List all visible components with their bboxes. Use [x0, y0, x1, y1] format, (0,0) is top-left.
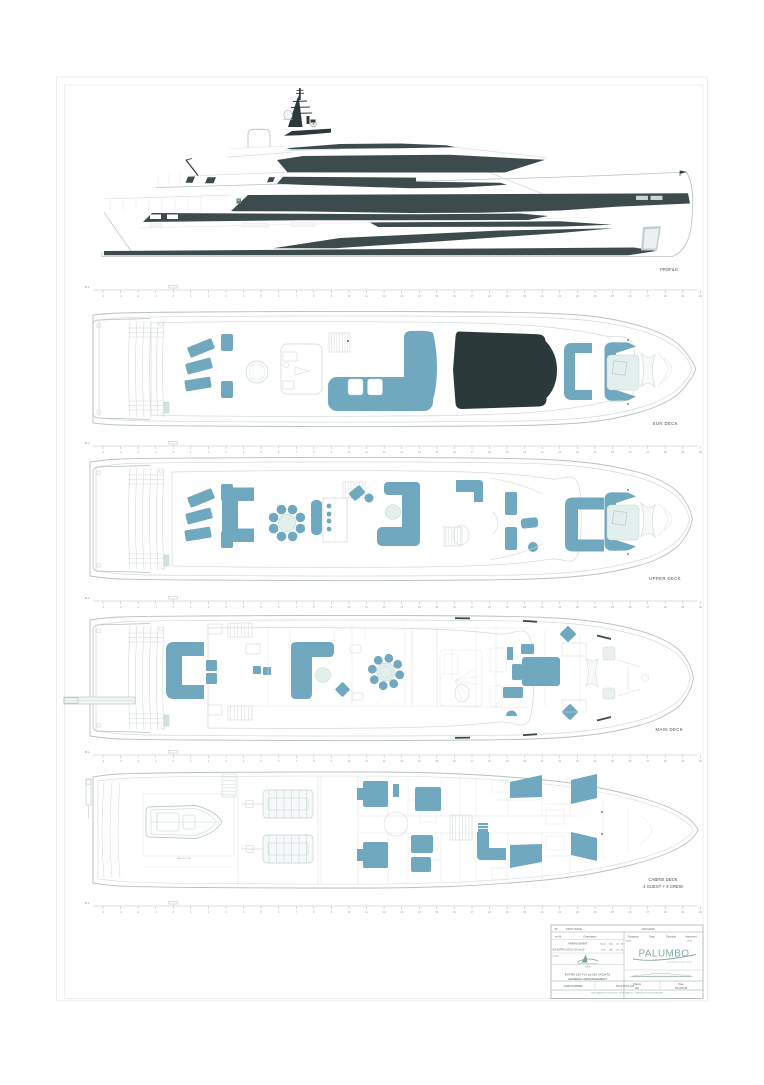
- svg-text:B.L.: B.L.: [85, 285, 91, 289]
- svg-text:FIRST ISSUE: FIRST ISSUE: [566, 927, 582, 931]
- svg-text:UPPER DECK: UPPER DECK: [649, 576, 681, 581]
- svg-text:Approved: Approved: [685, 935, 697, 939]
- svg-text:GENERAL ARRANGEMENT: GENERAL ARRANGEMENT: [568, 977, 608, 981]
- svg-text:B.L.: B.L.: [85, 441, 91, 445]
- svg-text:16/12/2016: 16/12/2016: [642, 927, 656, 931]
- svg-text:rev.00: rev.00: [553, 955, 560, 958]
- svg-text:YARD NUMBER: YARD NUMBER: [564, 984, 583, 988]
- svg-text:Date: Date: [649, 935, 655, 939]
- svg-text:ISA: ISA: [635, 987, 639, 990]
- svg-text:P.Vit.: P.Vit.: [688, 940, 693, 943]
- svg-text:THIS DRAWING IS PROPERTY OF PA: THIS DRAWING IS PROPERTY OF PALUMBO S.Y.…: [591, 992, 664, 995]
- svg-text:4 GUEST + 4 CREW: 4 GUEST + 4 CREW: [643, 884, 684, 889]
- svg-text:rev.Nr: rev.Nr: [555, 936, 562, 939]
- svg-text:Objects: Objects: [633, 983, 642, 986]
- svg-text:B.L.: B.L.: [85, 596, 91, 600]
- svg-text:A.Vitt.: A.Vitt.: [626, 940, 632, 943]
- svg-text:SUN DECK: SUN DECK: [653, 421, 678, 426]
- svg-text:Checked: Checked: [666, 935, 677, 939]
- svg-text:Scale: Scale: [600, 944, 606, 946]
- svg-text:B.L.: B.L.: [85, 901, 91, 905]
- svg-text:Prepared: Prepared: [628, 935, 639, 939]
- svg-text:Date: Date: [678, 983, 684, 986]
- svg-text:16/12/2016: 16/12/2016: [675, 987, 688, 990]
- svg-text:I.S.A.: I.S.A.: [585, 966, 591, 969]
- svg-text:SUPERYACHTS: SUPERYACHTS: [667, 961, 692, 964]
- svg-text:PALUMBO: PALUMBO: [639, 949, 690, 960]
- svg-text:MAIN DECK: MAIN DECK: [656, 727, 683, 732]
- svg-text:PROFILE: PROFILE: [660, 267, 678, 272]
- svg-text:ARRANGEMENT: ARRANGEMENT: [568, 943, 588, 946]
- svg-text:CABINS DECK: CABINS DECK: [648, 877, 677, 882]
- svg-text:B.L.: B.L.: [85, 750, 91, 754]
- svg-text:Description: Description: [584, 935, 598, 939]
- svg-text:ISA-EXTRA 130 FLY GA rev.00: ISA-EXTRA 130 FLY GA rev.00: [553, 949, 586, 952]
- svg-text:BEACH CLUB: BEACH CLUB: [177, 857, 192, 860]
